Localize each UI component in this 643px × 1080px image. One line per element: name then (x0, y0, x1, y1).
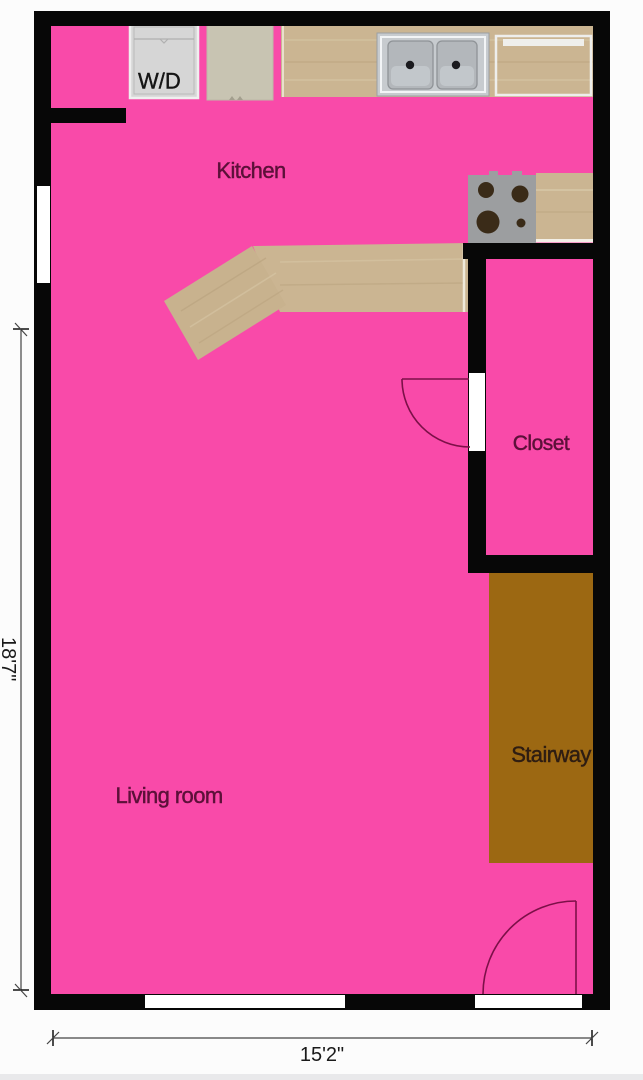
svg-text:Stairway: Stairway (511, 742, 591, 767)
svg-text:Kitchen: Kitchen (216, 158, 285, 183)
svg-text:Closet: Closet (513, 432, 570, 455)
svg-text:Living room: Living room (115, 783, 222, 808)
svg-text:15'2": 15'2" (300, 1044, 344, 1066)
svg-text:W/D: W/D (138, 69, 181, 94)
svg-text:18'7": 18'7" (0, 637, 19, 681)
